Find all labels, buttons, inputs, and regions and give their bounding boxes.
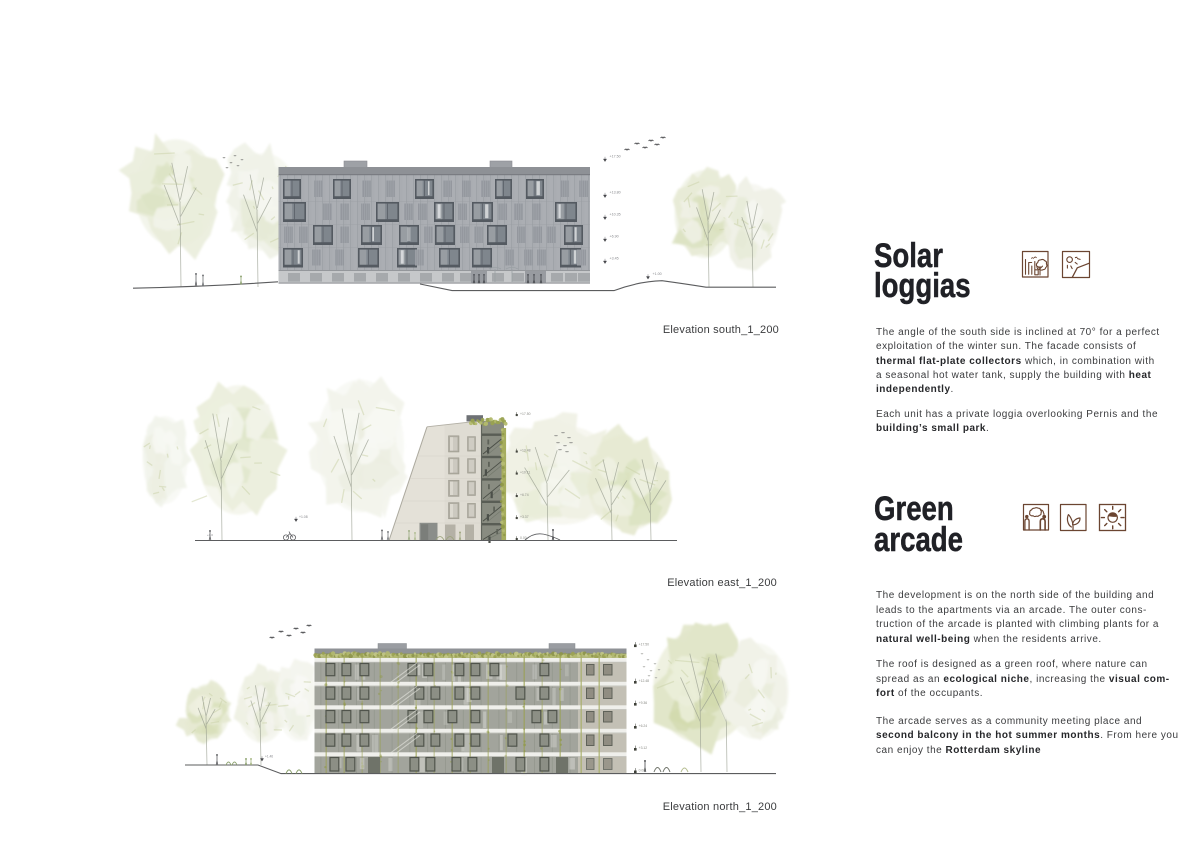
svg-text:+6.90: +6.90	[610, 235, 619, 239]
svg-text:0.00: 0.00	[520, 536, 527, 540]
svg-text:+1.46: +1.46	[265, 755, 273, 759]
svg-text:+6.74: +6.74	[520, 493, 529, 497]
svg-text:+17.50: +17.50	[610, 155, 621, 159]
svg-text:+17.50: +17.50	[639, 643, 650, 647]
svg-text:+1.00: +1.00	[653, 272, 662, 276]
svg-text:+10.35: +10.35	[610, 213, 621, 217]
svg-text:+3.37: +3.37	[520, 515, 529, 519]
svg-text:+13.48: +13.48	[520, 449, 531, 453]
svg-text:+9.36: +9.36	[639, 701, 648, 705]
svg-text:+3.45: +3.45	[610, 257, 619, 261]
svg-text:+3.12: +3.12	[639, 746, 648, 750]
svg-text:+10.11: +10.11	[520, 471, 530, 475]
svg-text:+13.80: +13.80	[610, 191, 621, 195]
svg-text:+6.24: +6.24	[639, 724, 648, 728]
svg-text:0.00: 0.00	[639, 769, 646, 773]
svg-text:+1.08: +1.08	[299, 515, 308, 519]
svg-text:+12.48: +12.48	[639, 679, 650, 683]
svg-text:+17.50: +17.50	[520, 412, 531, 416]
svg-text:+0.0: +0.0	[207, 533, 213, 537]
